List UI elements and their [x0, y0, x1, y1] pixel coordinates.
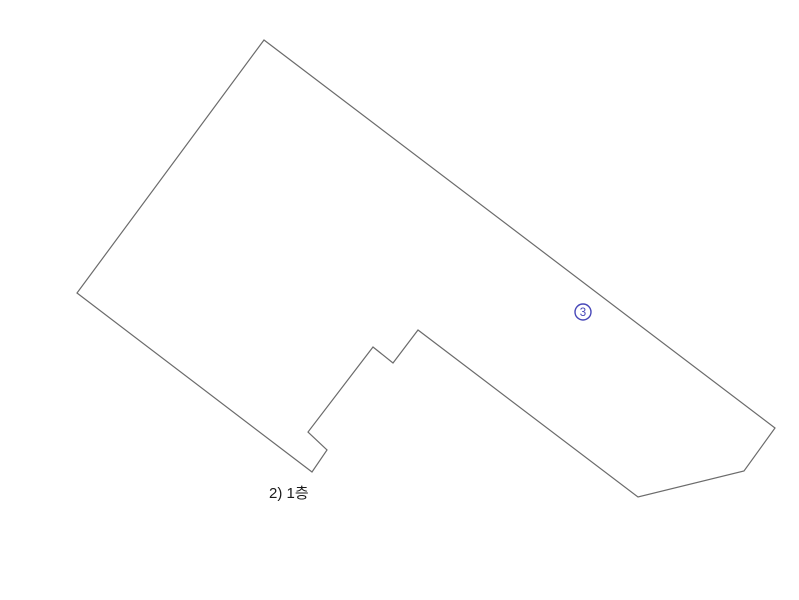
floor-caption: 2) 1층 — [269, 486, 309, 503]
unit-number-text: 3 — [580, 307, 586, 319]
floor-outline-svg: 3 — [0, 0, 799, 600]
floor-outline-polygon — [77, 40, 775, 497]
floor-plan-drawing: 3 2) 1층 — [0, 0, 799, 600]
unit-number-marker: 3 — [575, 304, 591, 320]
